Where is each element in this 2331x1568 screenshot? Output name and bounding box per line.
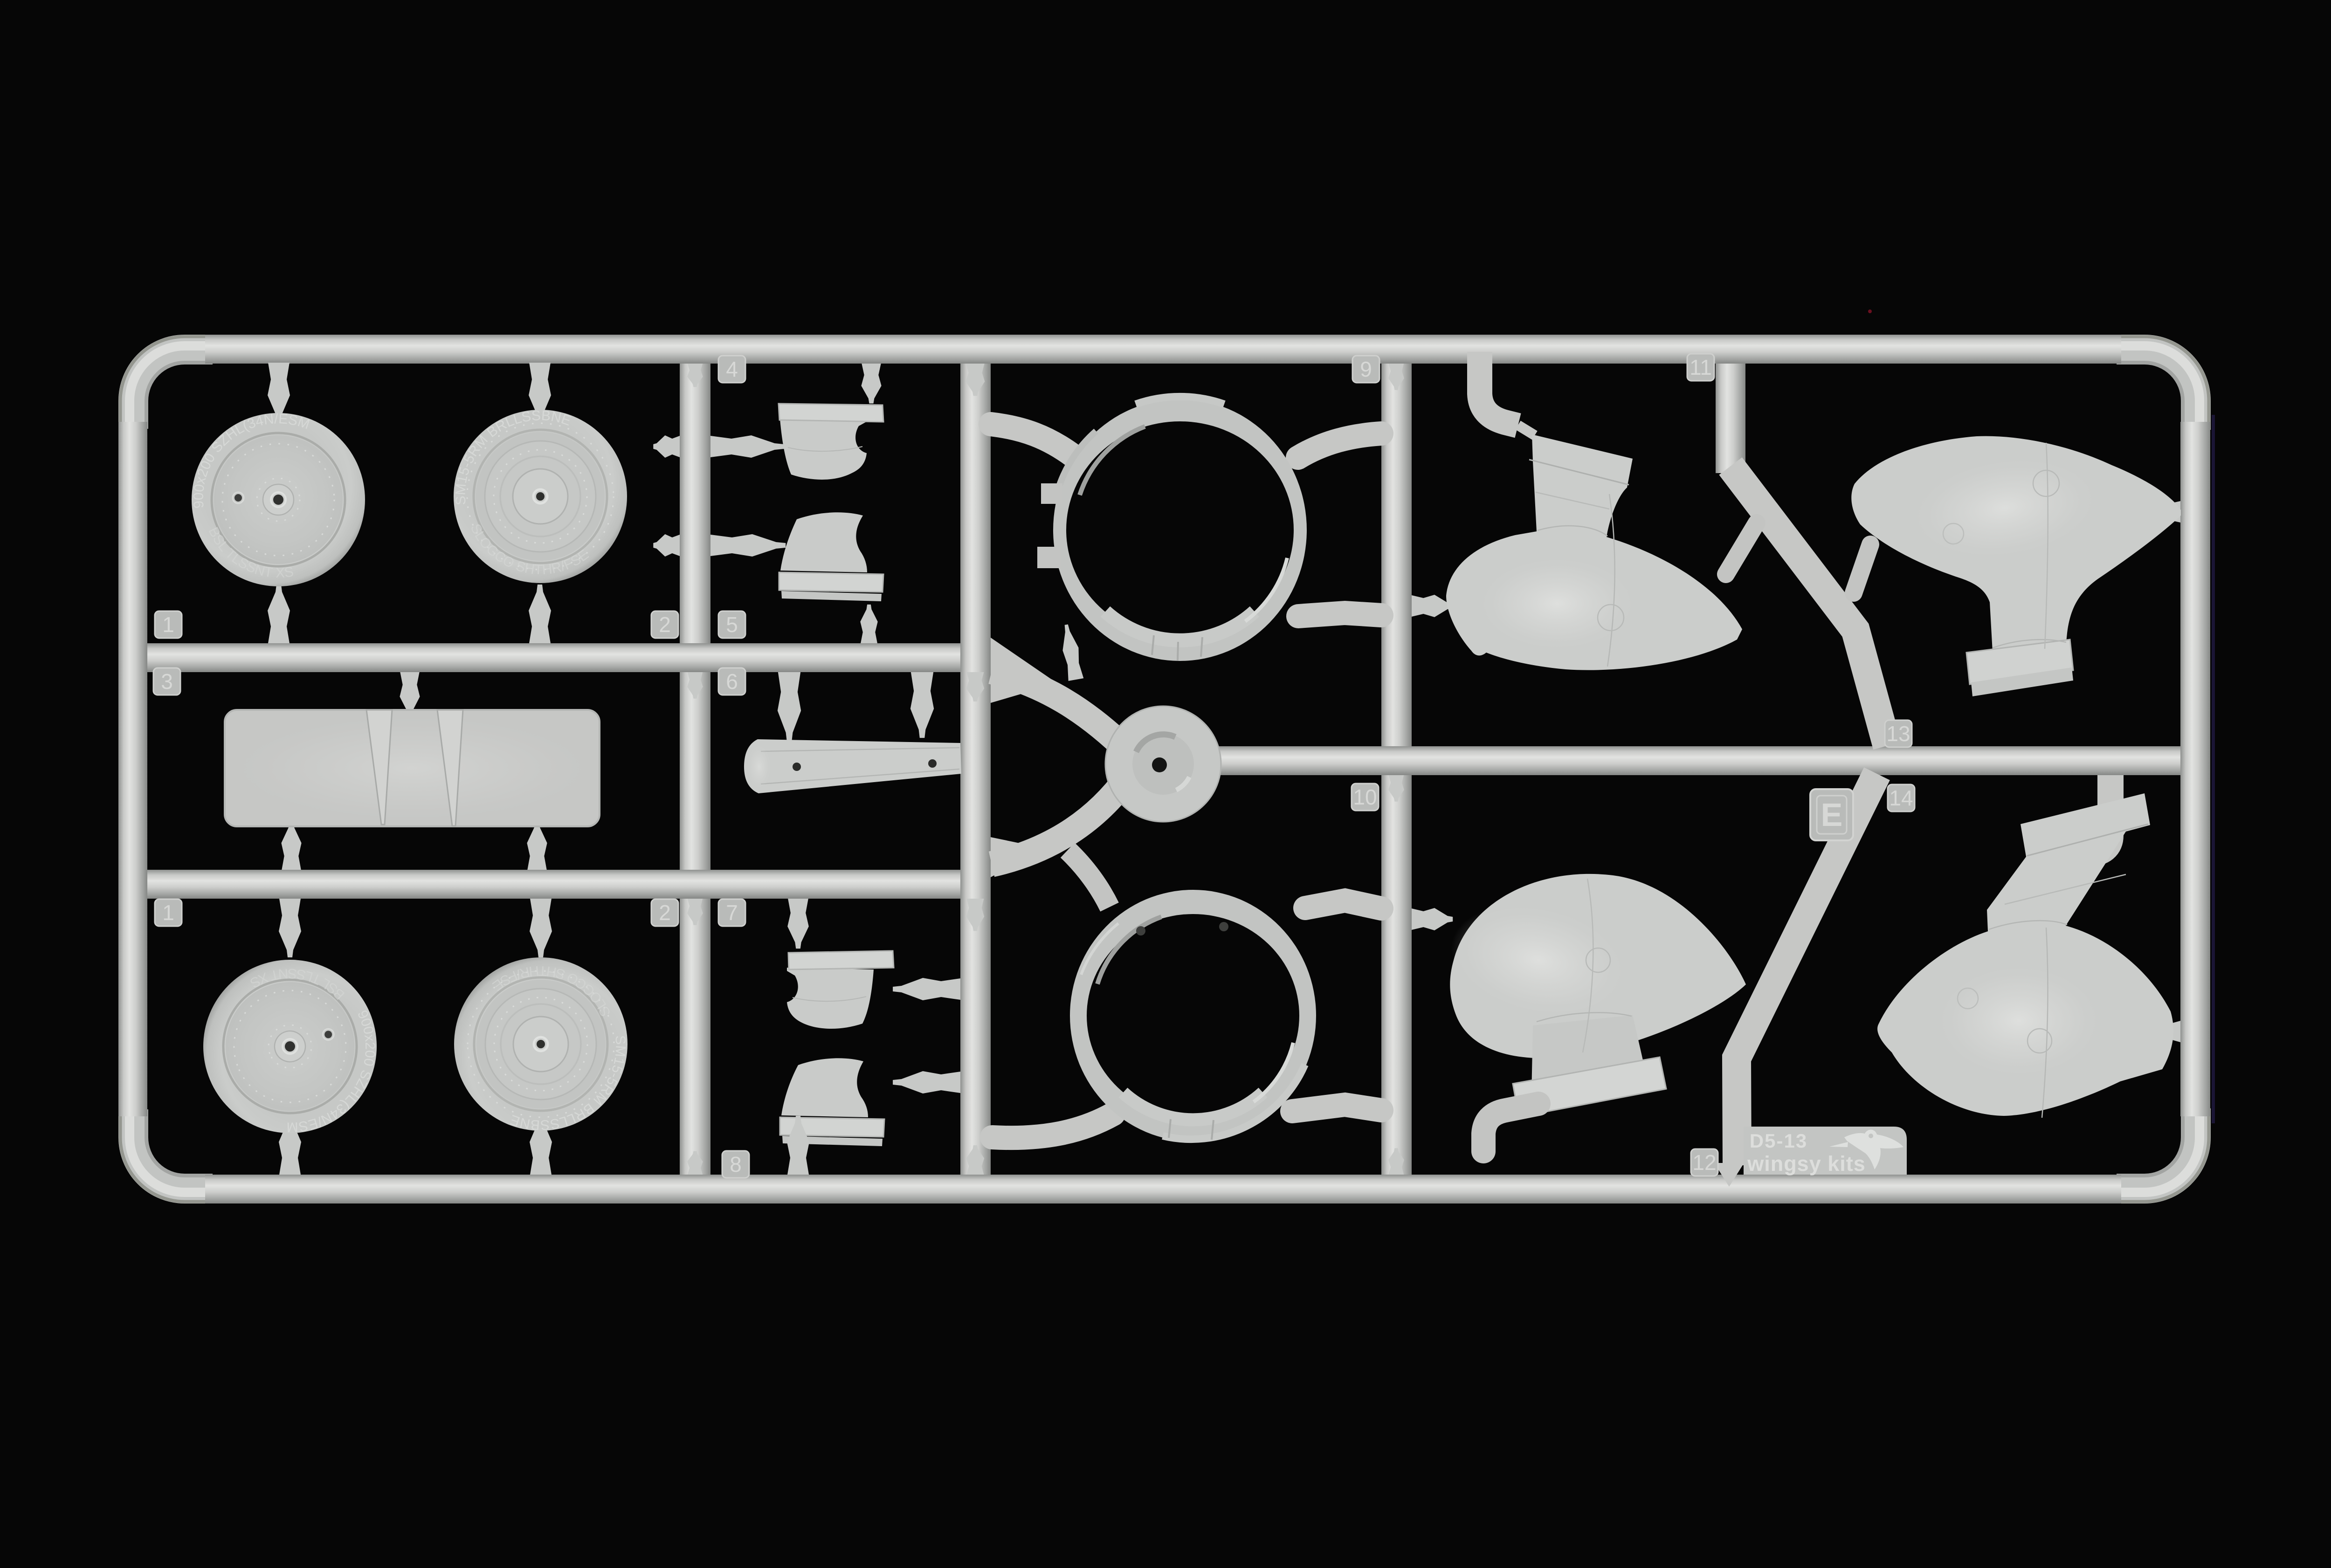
svg-text:14: 14 bbox=[1889, 786, 1913, 810]
svg-text:6: 6 bbox=[726, 669, 738, 694]
svg-text:13: 13 bbox=[1886, 722, 1910, 746]
svg-text:1: 1 bbox=[162, 612, 174, 637]
svg-text:4: 4 bbox=[726, 357, 738, 381]
svg-text:7: 7 bbox=[726, 901, 738, 925]
svg-text:wingsy kits: wingsy kits bbox=[1747, 1152, 1866, 1176]
svg-text:9: 9 bbox=[1360, 357, 1372, 381]
svg-text:8: 8 bbox=[730, 1152, 742, 1176]
svg-text:11: 11 bbox=[1690, 355, 1712, 379]
svg-text:D5-13: D5-13 bbox=[1750, 1130, 1807, 1152]
svg-text:12: 12 bbox=[1692, 1150, 1716, 1175]
svg-text:10: 10 bbox=[1353, 785, 1377, 809]
svg-text:1: 1 bbox=[162, 901, 174, 925]
svg-text:2: 2 bbox=[659, 901, 671, 925]
svg-text:2: 2 bbox=[659, 612, 671, 637]
svg-text:5: 5 bbox=[726, 612, 738, 637]
svg-text:3: 3 bbox=[161, 669, 173, 694]
svg-text:E: E bbox=[1821, 797, 1843, 833]
